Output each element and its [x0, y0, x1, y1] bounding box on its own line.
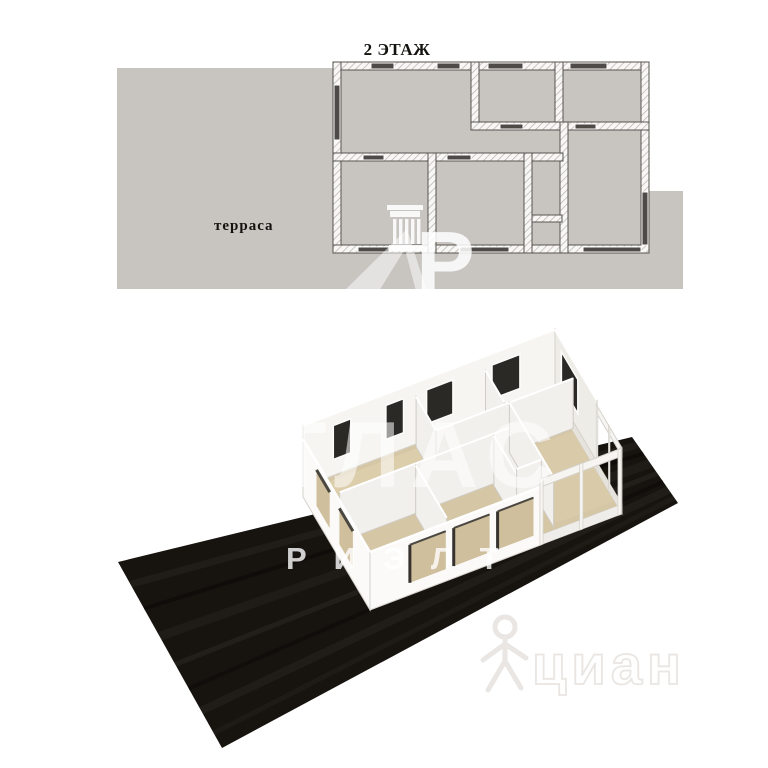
plan-window [488, 63, 523, 69]
cian-logo: циан [483, 617, 686, 696]
plan-window [334, 85, 340, 140]
house-post [618, 448, 621, 515]
plan-wall [532, 215, 562, 222]
plan-wall [560, 122, 568, 253]
plan-window [500, 124, 523, 129]
scene-canvas: Р АТЛАС РИЭЛТ циан [0, 0, 768, 768]
terrace-label: терраса [214, 218, 274, 235]
plan-window [570, 63, 607, 69]
monogram-letter: Р [416, 213, 475, 312]
plan-window [447, 155, 471, 160]
plan-window [437, 63, 460, 69]
brand-watermark-line1: АТЛАС [196, 402, 564, 507]
plan-window [371, 63, 394, 69]
cian-watermark-text: циан [532, 633, 686, 696]
plan-window [583, 247, 641, 252]
floorplan-image: Р АТЛАС РИЭЛТ циан 2 ЭТАЖ терраса [0, 0, 768, 768]
plan-window [363, 155, 384, 160]
house-post [580, 463, 583, 530]
plan-wall [555, 62, 563, 128]
plan-wall [471, 62, 479, 128]
plan-window [575, 124, 596, 129]
cian-pin-icon [483, 617, 526, 690]
brand-watermark-line2: РИЭЛТ [286, 541, 526, 576]
plan-wall [524, 153, 532, 253]
plan-window [358, 247, 389, 252]
floor-title: 2 ЭТАЖ [352, 40, 442, 60]
plan-window [642, 192, 648, 245]
